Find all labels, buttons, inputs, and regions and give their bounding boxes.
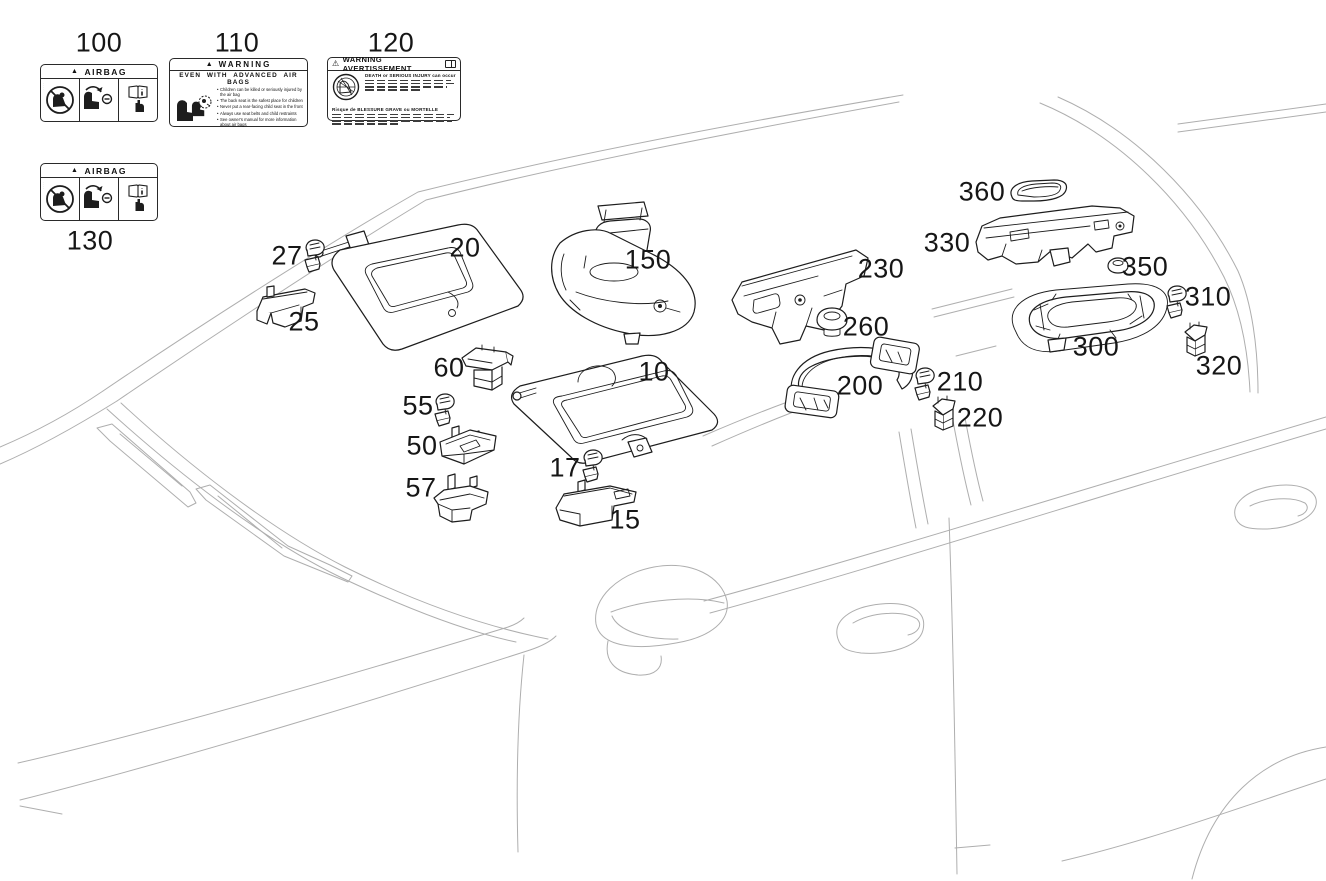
warning-bullet: See owner's manual for more information … <box>217 117 303 127</box>
manual-book-icon <box>445 60 456 68</box>
callout-25[interactable]: 25 <box>288 309 319 336</box>
fine-print-line <box>365 83 454 85</box>
callout-27[interactable]: 27 <box>271 243 302 270</box>
fine-print-line <box>332 117 450 119</box>
warning-title: WARNING AVERTISSEMENT <box>343 55 439 73</box>
diagram-artwork <box>0 0 1326 881</box>
part-360-lens <box>1011 180 1067 201</box>
warning-triangle-icon: ▲ <box>71 167 79 174</box>
callout-220[interactable]: 220 <box>957 405 1004 432</box>
advanced-airbag-warning-label-110: ▲ WARNING EVEN WITH ADVANCED AIR BAGS Ch… <box>169 58 308 127</box>
warning-text-english: DEATH or SERIOUS INJURY can occur <box>365 73 456 78</box>
airbag-label-header: ▲ AIRBAG <box>41 65 157 79</box>
no-child-seat-icon <box>41 178 80 220</box>
callout-310[interactable]: 310 <box>1185 284 1232 311</box>
fine-print-line <box>332 120 452 122</box>
warning-text-french: Risque de BLESSURE GRAVE ou MORTELLE <box>332 107 456 112</box>
warning-subtitle: EVEN WITH ADVANCED AIR BAGS <box>170 71 307 86</box>
airbag-label-title: AIRBAG <box>84 67 127 77</box>
seat-airbag-icon <box>80 79 119 121</box>
callout-360[interactable]: 360 <box>959 179 1006 206</box>
owners-manual-icon <box>119 79 157 121</box>
fine-print-line <box>365 89 421 91</box>
part-220-clip <box>933 396 955 430</box>
bilingual-warning-label-120: ⚠ WARNING AVERTISSEMENT DEATH or SERIOUS… <box>327 57 461 121</box>
warning-triangle-icon: ▲ <box>206 61 215 68</box>
callout-150[interactable]: 150 <box>625 247 672 274</box>
part-20-sun-visor-lh <box>315 224 523 350</box>
callout-320[interactable]: 320 <box>1196 353 1243 380</box>
warning-title: WARNING <box>219 60 272 69</box>
callout-57[interactable]: 57 <box>405 475 436 502</box>
no-child-seat-icon <box>41 79 80 121</box>
fine-print-line <box>332 114 454 116</box>
callout-10[interactable]: 10 <box>638 359 669 386</box>
callout-60[interactable]: 60 <box>433 355 464 382</box>
airbag-warning-label-100: ▲ AIRBAG ···· <box>40 64 158 122</box>
part-55-clip <box>435 394 454 426</box>
fine-print-line <box>365 80 451 82</box>
callout-200[interactable]: 200 <box>837 373 884 400</box>
airbag-hazard-pictogram <box>332 73 362 106</box>
callout-260[interactable]: 260 <box>843 314 890 341</box>
callout-350[interactable]: 350 <box>1122 254 1169 281</box>
seat-airbag-icon <box>80 178 119 220</box>
part-330-bracket <box>976 206 1134 266</box>
fine-print-line <box>365 86 447 88</box>
part-60-clip <box>462 345 513 390</box>
callout-230[interactable]: 230 <box>858 256 905 283</box>
warning-bullet: The back seat is the safest place for ch… <box>217 98 303 103</box>
part-310-clip <box>1167 286 1186 318</box>
fine-print-line <box>332 123 400 125</box>
warning-bullet: Children can be killed or seriously inju… <box>217 87 303 97</box>
callout-55[interactable]: 55 <box>402 393 433 420</box>
owners-manual-icon <box>119 178 157 220</box>
warning-bullet: Always use seat belts and child restrain… <box>217 111 303 116</box>
part-150-rear-view-mirror <box>552 202 696 344</box>
warning-bullet: Never put a rear-facing child seat in th… <box>217 104 303 109</box>
callout-100[interactable]: 100 <box>76 30 123 57</box>
callout-120[interactable]: 120 <box>368 30 415 57</box>
part-57-holder <box>434 474 488 522</box>
callout-15[interactable]: 15 <box>609 507 640 534</box>
callout-330[interactable]: 330 <box>924 230 971 257</box>
warning-triangle-icon: ▲ <box>71 68 79 75</box>
part-50-holder <box>440 426 496 464</box>
part-210-clip <box>915 368 934 400</box>
callout-210[interactable]: 210 <box>937 369 984 396</box>
warning-bullet-list: Children can be killed or seriously inju… <box>215 87 304 128</box>
callout-20[interactable]: 20 <box>449 235 480 262</box>
callout-300[interactable]: 300 <box>1073 334 1120 361</box>
callout-17[interactable]: 17 <box>549 455 580 482</box>
airbag-label-header: ▲ AIRBAG <box>41 164 157 178</box>
warning-triangle-icon: ⚠ <box>332 60 340 68</box>
callout-130[interactable]: 130 <box>67 228 114 255</box>
callout-50[interactable]: 50 <box>406 433 437 460</box>
airbag-deployment-pictogram <box>173 87 215 128</box>
part-17-clip <box>583 450 602 482</box>
callout-110[interactable]: 110 <box>215 30 260 57</box>
airbag-label-title: AIRBAG <box>84 166 127 176</box>
part-10-sun-visor-rh <box>512 355 718 463</box>
airbag-warning-label-130: ▲ AIRBAG ···· <box>40 163 158 221</box>
parts-diagram: ▲ AIRBAG ···· <box>0 0 1326 881</box>
